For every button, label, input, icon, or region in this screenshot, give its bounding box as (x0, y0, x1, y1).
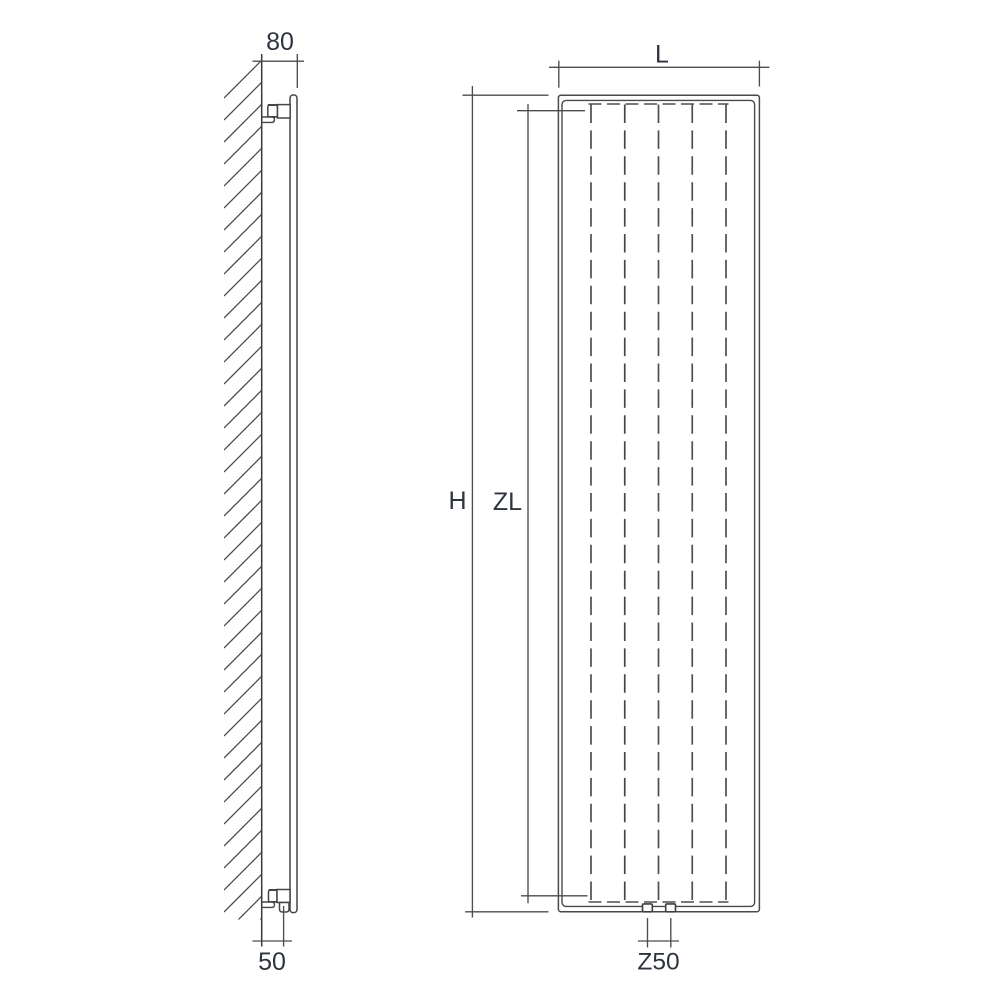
svg-text:80: 80 (266, 28, 294, 56)
svg-text:50: 50 (258, 948, 286, 976)
svg-text:Z50: Z50 (637, 949, 679, 976)
svg-text:H: H (448, 487, 466, 515)
svg-text:ZL: ZL (493, 488, 522, 516)
svg-text:L: L (655, 41, 669, 69)
